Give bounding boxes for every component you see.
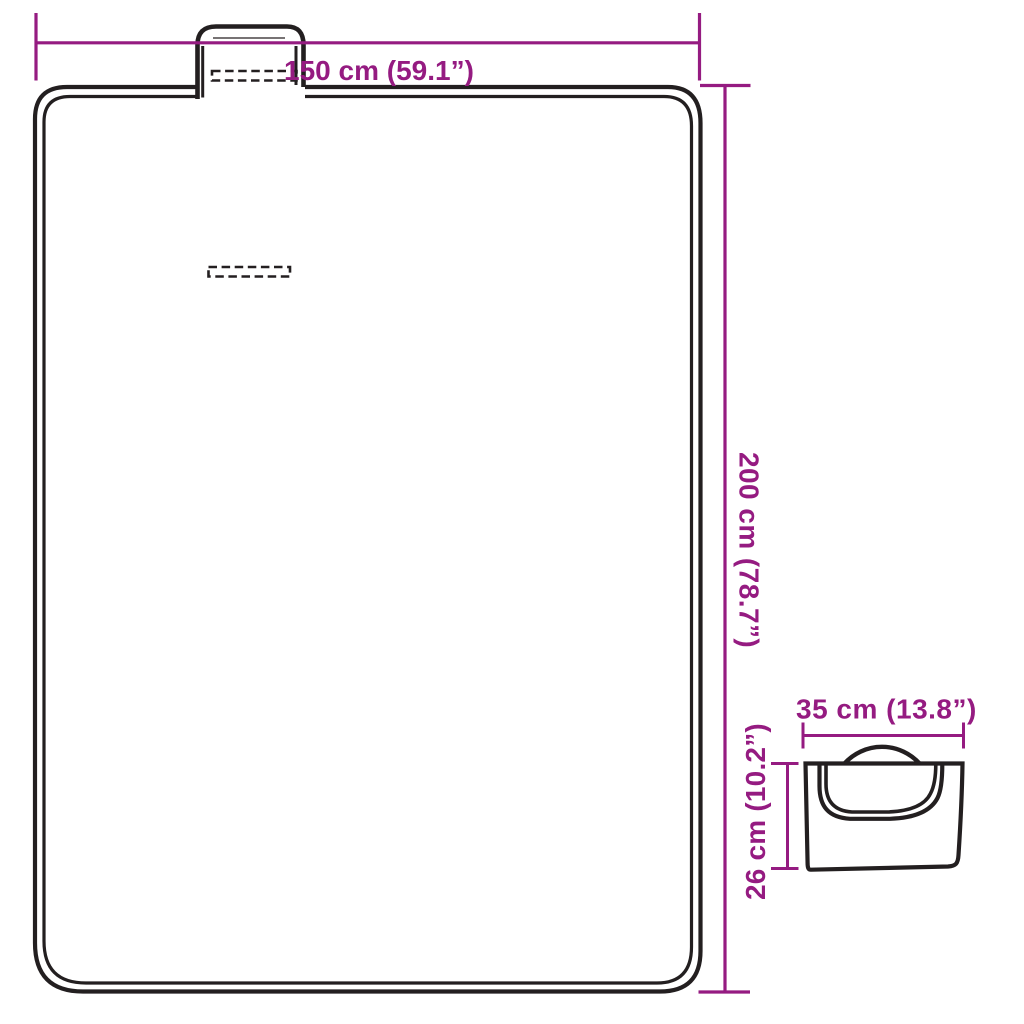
svg-text:200 cm (78.7”): 200 cm (78.7”) [734,452,765,648]
svg-text:26 cm (10.2”): 26 cm (10.2”) [740,723,771,900]
svg-text:35 cm (13.8”): 35 cm (13.8”) [796,694,977,725]
svg-text:150 cm (59.1”): 150 cm (59.1”) [284,55,474,86]
